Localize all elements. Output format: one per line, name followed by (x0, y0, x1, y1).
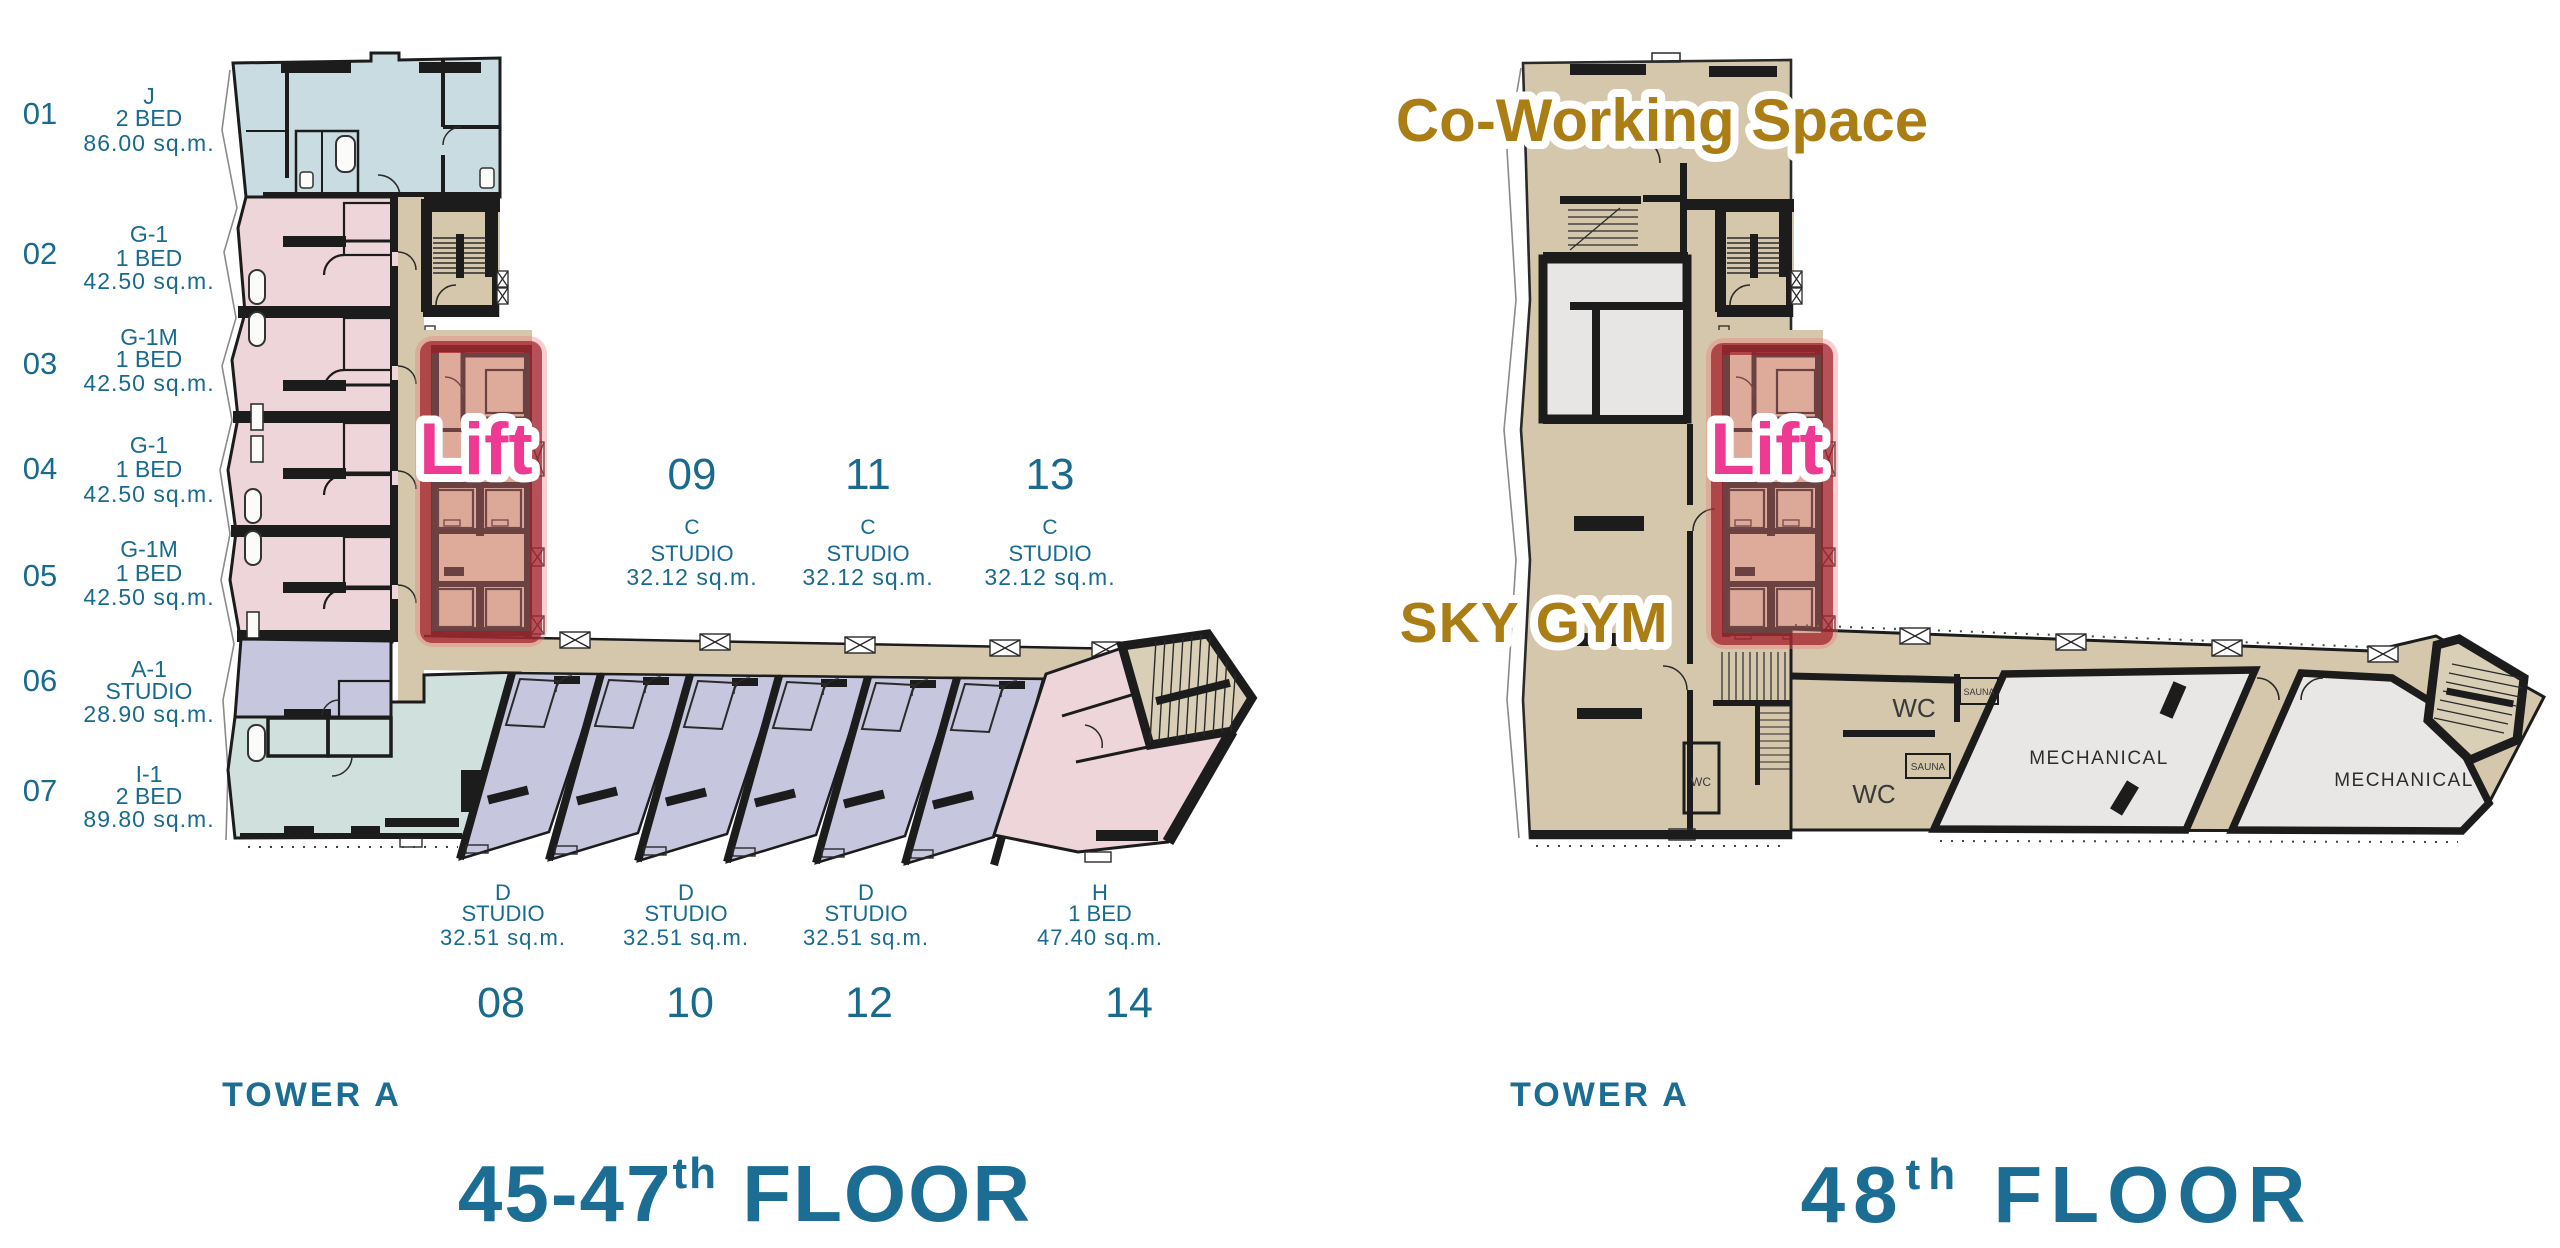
svg-text:WC: WC (1691, 775, 1711, 789)
svg-text:1 BED: 1 BED (1068, 901, 1132, 926)
svg-text:STUDIO: STUDIO (644, 901, 727, 926)
svg-text:2 BED: 2 BED (116, 105, 182, 131)
svg-text:SAUNA: SAUNA (1963, 687, 1994, 697)
svg-text:1 BED: 1 BED (116, 346, 182, 372)
svg-text:C: C (684, 516, 699, 539)
svg-text:05: 05 (23, 558, 57, 593)
svg-text:C: C (1042, 516, 1057, 539)
svg-text:89.80 sq.m.: 89.80 sq.m. (83, 806, 214, 832)
svg-text:STUDIO: STUDIO (824, 901, 907, 926)
svg-text:STUDIO: STUDIO (826, 541, 909, 566)
svg-text:14: 14 (1105, 979, 1153, 1027)
svg-text:06: 06 (23, 663, 57, 698)
svg-text:Lift: Lift (419, 409, 533, 490)
svg-text:1 BED: 1 BED (116, 560, 182, 586)
svg-text:48th FLOOR: 48th FLOOR (1801, 1150, 2314, 1239)
svg-text:MECHANICAL: MECHANICAL (2029, 748, 2169, 769)
svg-text:10: 10 (666, 979, 714, 1027)
svg-text:12: 12 (845, 979, 893, 1027)
svg-text:C: C (860, 516, 875, 539)
svg-text:07: 07 (23, 773, 57, 808)
svg-text:Co-Working Space: Co-Working Space (1396, 87, 1928, 154)
svg-text:04: 04 (23, 451, 57, 486)
svg-text:86.00 sq.m.: 86.00 sq.m. (83, 130, 214, 156)
svg-text:42.50 sq.m.: 42.50 sq.m. (83, 268, 214, 294)
svg-text:G-1: G-1 (130, 221, 168, 247)
svg-text:SKY GYM: SKY GYM (1400, 591, 1669, 655)
svg-text:02: 02 (23, 236, 57, 271)
svg-text:WC: WC (1852, 779, 1895, 809)
svg-text:32.51 sq.m.: 32.51 sq.m. (440, 925, 566, 950)
svg-text:09: 09 (668, 450, 717, 499)
svg-text:42.50 sq.m.: 42.50 sq.m. (83, 370, 214, 396)
svg-text:42.50 sq.m.: 42.50 sq.m. (83, 584, 214, 610)
svg-text:45-47th FLOOR: 45-47th FLOOR (458, 1149, 1032, 1238)
svg-text:08: 08 (477, 979, 525, 1027)
svg-text:STUDIO: STUDIO (1008, 541, 1091, 566)
svg-text:03: 03 (23, 346, 57, 381)
svg-text:11: 11 (845, 450, 891, 499)
svg-text:TOWER A: TOWER A (1510, 1076, 1690, 1114)
svg-text:G-1: G-1 (130, 432, 168, 458)
svg-text:47.40 sq.m.: 47.40 sq.m. (1037, 925, 1163, 950)
svg-text:STUDIO: STUDIO (650, 541, 733, 566)
svg-text:32.12 sq.m.: 32.12 sq.m. (802, 564, 933, 590)
svg-text:01: 01 (23, 96, 57, 131)
svg-text:STUDIO: STUDIO (461, 901, 544, 926)
svg-text:WC: WC (1892, 693, 1935, 723)
svg-text:28.90 sq.m.: 28.90 sq.m. (83, 701, 214, 727)
svg-text:Lift: Lift (1710, 409, 1824, 490)
svg-text:32.51 sq.m.: 32.51 sq.m. (623, 925, 749, 950)
svg-text:32.12 sq.m.: 32.12 sq.m. (984, 564, 1115, 590)
svg-text:13: 13 (1026, 450, 1075, 499)
svg-text:TOWER A: TOWER A (222, 1076, 402, 1114)
svg-text:1 BED: 1 BED (116, 456, 182, 482)
svg-text:32.12 sq.m.: 32.12 sq.m. (626, 564, 757, 590)
svg-text:42.50 sq.m.: 42.50 sq.m. (83, 481, 214, 507)
svg-text:G-1M: G-1M (120, 536, 178, 562)
svg-text:32.51 sq.m.: 32.51 sq.m. (803, 925, 929, 950)
svg-text:MECHANICAL: MECHANICAL (2334, 770, 2474, 791)
svg-text:SAUNA: SAUNA (1911, 762, 1946, 773)
